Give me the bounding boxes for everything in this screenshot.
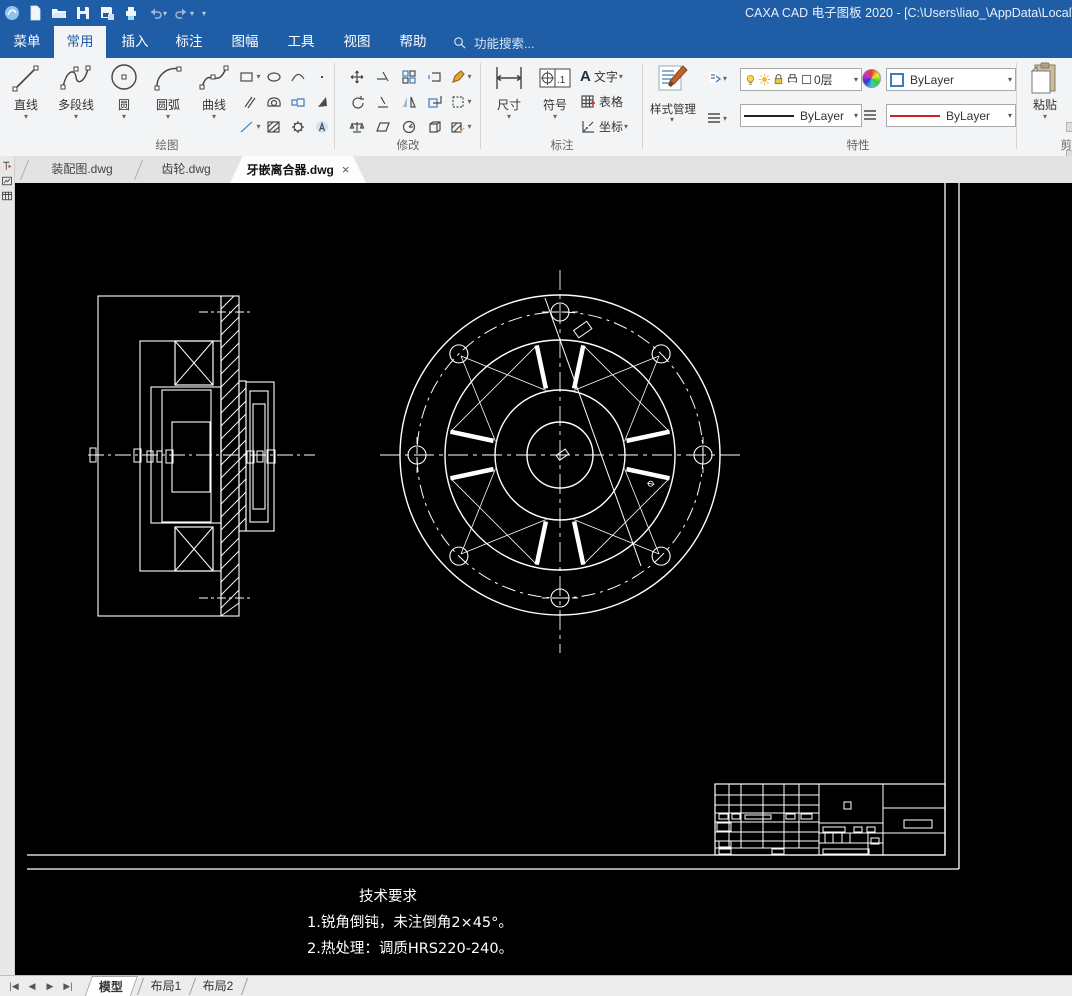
linetype-sample (744, 115, 794, 117)
app-logo-icon (3, 4, 20, 21)
symbol-button[interactable]: .1 符号▾ (534, 61, 576, 120)
hole-boss-tool-button[interactable] (262, 89, 286, 114)
line-tool-button[interactable]: 直线▾ (4, 61, 48, 120)
print-icon[interactable] (122, 4, 139, 21)
close-tab-icon[interactable]: × (342, 162, 350, 177)
layer-lock-icon (772, 73, 785, 86)
open-file-icon[interactable] (50, 4, 67, 21)
properties-group-label: 特性 (702, 137, 1014, 153)
menu-tab-gongju[interactable]: 工具 (276, 26, 326, 58)
document-tab-bar: 装配图.dwg 齿轮.dwg 牙嵌离合器.dwg× (0, 156, 1072, 184)
drawing-area: ⌀ 技术要求 1.锐角倒钝，未注倒角2×45°。 2.热处理：调质HRS220-… (0, 183, 1072, 975)
panel-toolbar-icon[interactable] (1, 159, 13, 171)
tech-req-line-1: 1.锐角倒钝，未注倒角2×45°。 (307, 910, 513, 936)
text-icon: A (580, 68, 591, 85)
doc-tab-clutch[interactable]: 牙嵌离合器.dwg× (230, 156, 366, 183)
paste-button[interactable]: 粘贴▾ (1025, 61, 1065, 120)
ribbon-separator (480, 63, 481, 149)
mirror-tool-button[interactable] (396, 89, 422, 114)
svg-text:.1: .1 (557, 75, 566, 86)
edit-tool-button[interactable]: ▾ (448, 64, 474, 89)
technical-requirements: 技术要求 1.锐角倒钝，未注倒角2×45°。 2.热处理：调质HRS220-24… (307, 884, 513, 962)
redo-dropdown-icon[interactable]: ▾ (190, 9, 194, 18)
search-placeholder: 功能搜索... (474, 33, 534, 52)
dropdown-arrow-icon[interactable]: ▾ (851, 111, 858, 120)
rotate-ref-tool-button[interactable] (396, 114, 422, 139)
polyline-tool-button[interactable]: 多段线▾ (48, 61, 104, 120)
dropdown-arrow-icon[interactable]: ▾ (24, 113, 28, 120)
copy-rotate-tool-button[interactable] (344, 89, 370, 114)
layout-tab-bar: |◀ ◀ ▶ ▶| 模型 布局1 布局2 (0, 975, 1072, 996)
pick-arrow-tool-button[interactable] (310, 89, 334, 114)
dropdown-arrow-icon[interactable]: ▾ (74, 113, 78, 120)
search-icon (452, 35, 467, 50)
elliptic-arc-tool-button[interactable] (286, 64, 310, 89)
menu-tab-changyong[interactable]: 常用 (54, 26, 106, 58)
dropdown-arrow-icon[interactable]: ▾ (851, 75, 858, 84)
menu-tab-bangzhu[interactable]: 帮助 (388, 26, 438, 58)
layer-freeze-icon (758, 73, 771, 86)
dropdown-arrow-icon[interactable]: ▾ (1005, 75, 1012, 84)
current-lineweight-value: ByLayer (946, 109, 990, 123)
ribbon-separator (1016, 63, 1017, 149)
window-title: CAXA CAD 电子图板 2020 - [C:\Users\liao_\App… (745, 0, 1072, 26)
tab-model[interactable]: 模型 (84, 976, 138, 996)
hatch-tool-button[interactable] (262, 114, 286, 139)
svg-text:⌀: ⌀ (644, 477, 659, 490)
arc-tool-button[interactable]: 圆弧▾ (144, 61, 192, 120)
text-wipe-tool-button[interactable] (310, 114, 334, 139)
clipped-icon (1066, 122, 1072, 132)
draw-group-label: 绘图 (2, 137, 332, 153)
doc-tab-gear[interactable]: 齿轮.dwg (142, 156, 230, 183)
point-tool-button[interactable] (310, 64, 334, 89)
dropdown-arrow-icon[interactable]: ▾ (1005, 111, 1012, 120)
title-bar: ▾ ▾ ▾ CAXA CAD 电子图板 2020 - [C:\Users\lia… (0, 0, 1072, 26)
ribbon: 直线▾ 多段线▾ 圆▾ 圆弧▾ 曲线▾ ▾ (0, 58, 1072, 157)
function-search[interactable]: 功能搜索... (452, 33, 534, 52)
ribbon-group-clipboard: 粘贴▾ 剪 (1018, 58, 1072, 156)
color-dropdown[interactable]: ByLayer ▾ (886, 68, 1016, 91)
lineweight-sample (890, 115, 940, 117)
circle-tool-button[interactable]: 圆▾ (104, 61, 144, 120)
view3d-tool-button[interactable] (422, 114, 448, 139)
menu-tab-biaozhu[interactable]: 标注 (164, 26, 214, 58)
gear-tool-button[interactable] (286, 114, 310, 139)
tab-layout1[interactable]: 布局1 (144, 976, 188, 996)
dropdown-arrow-icon[interactable]: ▾ (122, 113, 126, 120)
coordinate-tool-button[interactable]: 坐标▾ (580, 114, 640, 139)
nav-first-icon[interactable]: |◀ (6, 976, 22, 996)
frame-tool-button[interactable]: ▾ (448, 89, 474, 114)
dropdown-arrow-icon[interactable]: ▾ (553, 113, 557, 120)
ribbon-group-properties: ▾ ▾ 0层 ▾ ByLayer ▾ ByLayer ▾ (702, 58, 1014, 156)
doc-tab-assembly[interactable]: 装配图.dwg (30, 156, 134, 183)
menu-tab-shitu[interactable]: 视图 (332, 26, 382, 58)
stretch-tool-button[interactable] (422, 64, 448, 89)
ribbon-separator (334, 63, 335, 149)
lineweight-icon (862, 107, 878, 123)
style-manager-button[interactable] (655, 61, 691, 95)
quick-access-customize-icon[interactable]: ▾ (202, 9, 206, 18)
layer-settings-button[interactable]: ▾ (706, 70, 727, 86)
panel-library-icon[interactable] (1, 174, 13, 186)
linetype-settings-button[interactable]: ▾ (706, 110, 727, 126)
current-color-swatch (890, 73, 904, 87)
color-picker-wheel[interactable] (862, 69, 881, 88)
new-file-icon[interactable] (26, 4, 43, 21)
trim-tool-button[interactable] (370, 64, 396, 89)
nav-prev-icon[interactable]: ◀ (24, 976, 40, 996)
ribbon-group-modify: ▾ ▾ ▾ 修改 (338, 58, 478, 156)
dropdown-arrow-icon[interactable]: ▾ (1043, 113, 1047, 120)
ribbon-group-draw: 直线▾ 多段线▾ 圆▾ 圆弧▾ 曲线▾ ▾ (2, 58, 332, 156)
layer-dropdown[interactable]: 0层 ▾ (740, 68, 862, 91)
parallel-line-tool-button[interactable] (238, 89, 262, 114)
layer-color-swatch (800, 73, 813, 86)
undo-icon[interactable] (146, 4, 163, 21)
hatch-edit-tool-button[interactable]: ▾ (448, 114, 474, 139)
tab-layout2[interactable]: 布局2 (196, 976, 240, 996)
scale-tool-button[interactable] (344, 114, 370, 139)
tech-req-line-2: 2.热处理：调质HRS220-240。 (307, 936, 513, 962)
rectangle-tool-button[interactable]: ▾ (238, 64, 262, 89)
dropdown-arrow-icon[interactable]: ▾ (507, 113, 511, 120)
layer-print-icon (786, 73, 799, 86)
text-tool-button[interactable]: A文字▾ (580, 64, 640, 89)
current-color-value: ByLayer (910, 73, 954, 87)
dimension-group-label: 标注 (484, 137, 640, 153)
color-line-tool-button[interactable]: ▾ (238, 114, 262, 139)
dimension-button[interactable]: 尺寸▾ (486, 61, 532, 120)
layer-visible-icon (744, 73, 757, 86)
nav-next-icon[interactable]: ▶ (42, 976, 58, 996)
ribbon-group-dimension: 尺寸▾ .1 符号▾ A文字▾ 表格 坐标▾ 标注 (484, 58, 640, 156)
tech-req-title: 技术要求 (359, 884, 513, 910)
dropdown-arrow-icon[interactable]: ▾ (212, 113, 216, 120)
menu-tab-charu[interactable]: 插入 (110, 26, 160, 58)
current-layer-value: 0层 (814, 71, 833, 88)
array-tool-button[interactable] (396, 64, 422, 89)
ribbon-separator (642, 63, 643, 149)
dropdown-arrow-icon[interactable]: ▾ (166, 113, 170, 120)
lineweight-dropdown[interactable]: ByLayer ▾ (886, 104, 1016, 127)
spline-tool-button[interactable]: 曲线▾ (192, 61, 236, 120)
redo-icon[interactable] (173, 4, 190, 21)
save-all-icon[interactable] (98, 4, 115, 21)
bolt-tool-button[interactable] (286, 89, 310, 114)
shear-tool-button[interactable] (370, 114, 396, 139)
coordinate-icon (580, 119, 596, 135)
undo-dropdown-icon[interactable]: ▾ (163, 9, 167, 18)
current-linetype-value: ByLayer (800, 109, 844, 123)
move-tool-button[interactable] (344, 64, 370, 89)
table-icon (580, 94, 596, 110)
menu-tab-tufu[interactable]: 图幅 (220, 26, 270, 58)
menu-tab-caidan[interactable]: 菜单 (4, 26, 50, 58)
modify-group-label: 修改 (338, 137, 478, 153)
linetype-dropdown[interactable]: ByLayer ▾ (740, 104, 862, 127)
side-panel-strip (0, 156, 15, 975)
nav-last-icon[interactable]: ▶| (60, 976, 76, 996)
menu-bar: 菜单 常用 插入 标注 图幅 工具 视图 帮助 功能搜索... (0, 26, 1072, 58)
table-tool-button[interactable]: 表格 (580, 89, 640, 114)
clipboard-group-label: 剪 (1018, 137, 1072, 153)
corner-tool-button[interactable] (422, 89, 448, 114)
dropdown-arrow-icon[interactable]: ▾ (670, 116, 674, 123)
ribbon-group-style: 样式管理 ▾ (644, 58, 702, 156)
panel-properties-icon[interactable] (1, 189, 13, 201)
caxa-cad-window: ▾ ▾ ▾ CAXA CAD 电子图板 2020 - [C:\Users\lia… (0, 0, 1072, 996)
save-icon[interactable] (74, 4, 91, 21)
ellipse-tool-button[interactable] (262, 64, 286, 89)
extend-tool-button[interactable] (370, 89, 396, 114)
cad-canvas[interactable]: ⌀ (14, 183, 1072, 975)
